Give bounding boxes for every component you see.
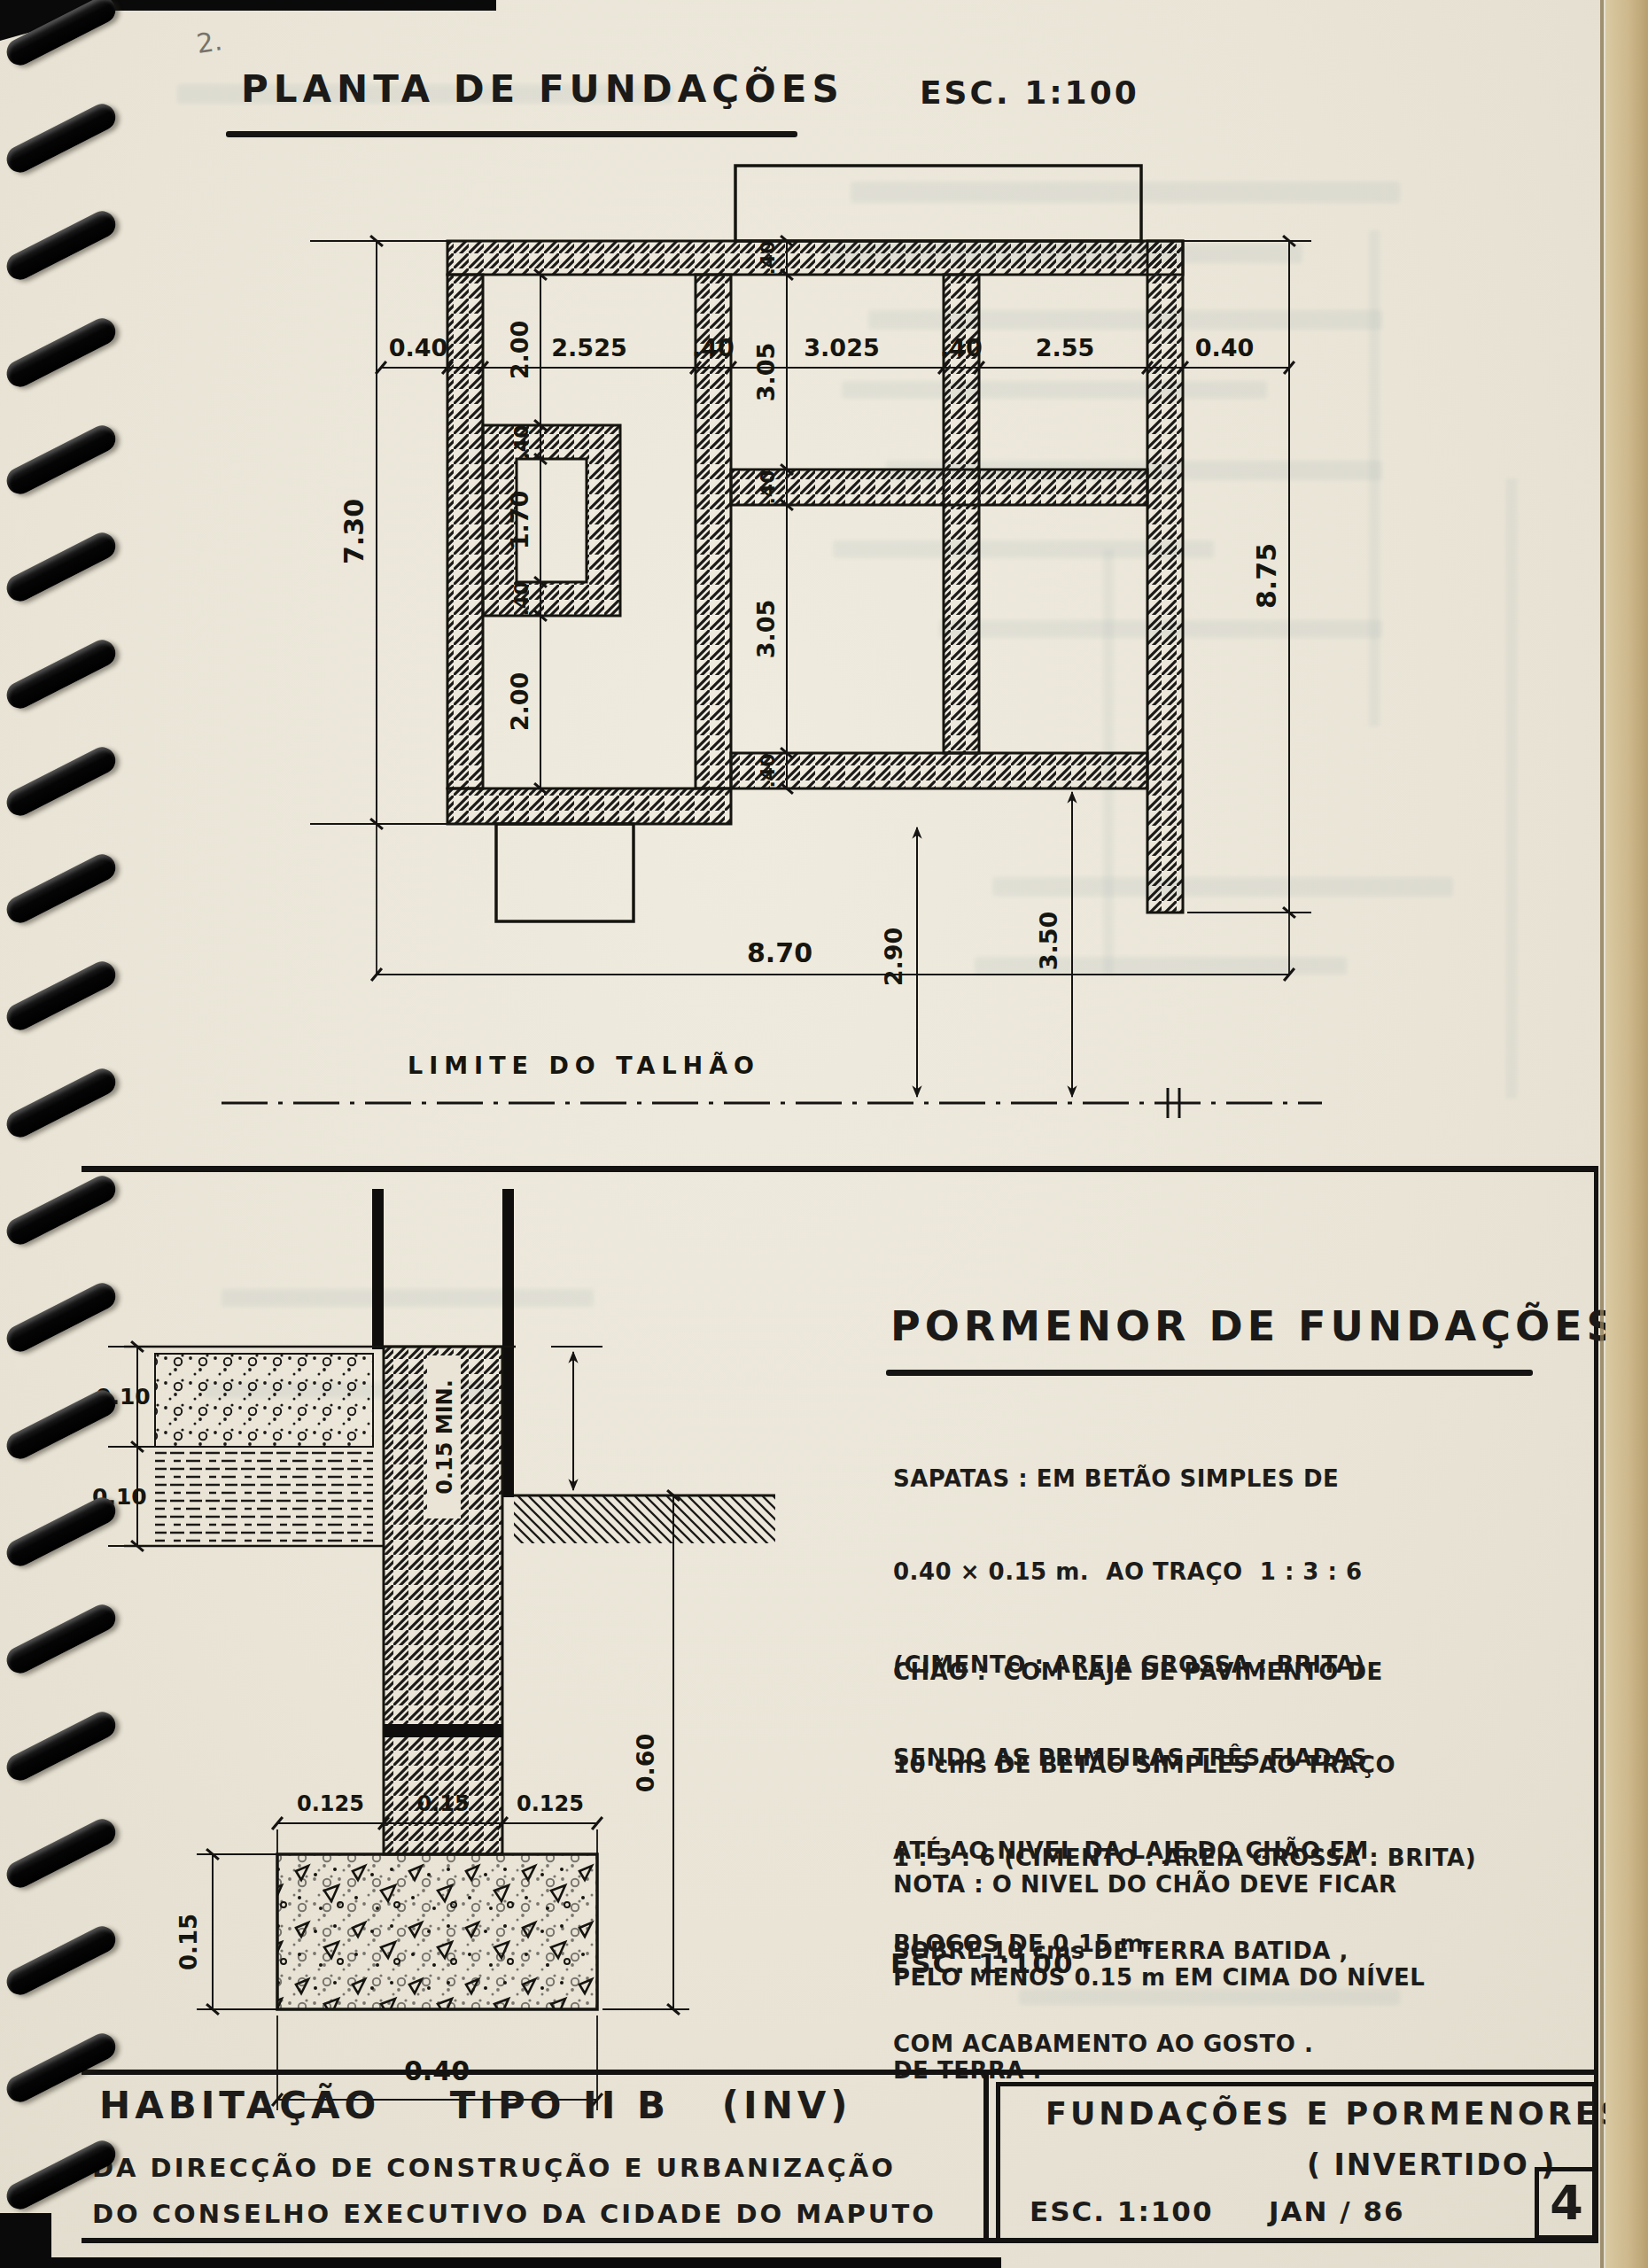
binding-coil xyxy=(2,528,120,606)
footing-stipple xyxy=(277,1854,597,2009)
binding-coil xyxy=(2,850,120,928)
foundation-plan-drawing: 0.40 2.525 .40 3.025 .40 2.55 0.40 2.00 … xyxy=(213,133,1347,1178)
dim-label-boundary-left: 2.90 xyxy=(880,928,907,987)
next-page-edge xyxy=(1605,0,1648,2268)
dim-label: 3.05 xyxy=(752,600,780,659)
scanned-drawing-page: 2. PLANTA DE FUNDAÇÕES ESC. 1:100 xyxy=(0,0,1648,2268)
concrete-slab xyxy=(155,1354,373,1447)
page-title: PLANTA DE FUNDAÇÕES xyxy=(241,67,844,111)
project-title: HABITAÇÃO TIPO II B (INV) xyxy=(99,2084,852,2127)
text-line: NOTA : O NIVEL DO CHÃO DEVE FICAR xyxy=(893,1869,1425,1900)
binding-coil xyxy=(2,99,120,177)
binding-coil xyxy=(2,742,120,820)
dim-label: 0.40 xyxy=(1195,334,1255,361)
sheet-title: FUNDAÇÕES E PORMENORES xyxy=(1046,2096,1626,2132)
org-line-1: DA DIRECÇÃO DE CONSTRUÇÃO E URBANIZAÇÃO xyxy=(92,2153,896,2183)
plot-boundary-label: LIMITE DO TALHÃO xyxy=(408,1052,760,1079)
text-line: SAPATAS : EM BETÃO SIMPLES DE xyxy=(893,1464,1369,1495)
plan-scale-label: ESC. 1:100 xyxy=(920,74,1139,111)
detail-title-underline xyxy=(886,1370,1533,1376)
bleed-through-artifact xyxy=(1369,230,1380,726)
text-line: CHÃO : COM LAJE DE PAVIMENTO DE xyxy=(893,1657,1476,1688)
dim-label: 2.00 xyxy=(506,672,533,732)
binding-coil xyxy=(2,957,120,1035)
dim-label: 2.00 xyxy=(506,321,533,380)
text-line: 0.40 × 0.15 m. AO TRAÇO 1 : 3 : 6 xyxy=(893,1557,1369,1588)
dim-label: .40 xyxy=(510,582,532,617)
titleblock-top-border xyxy=(82,2070,1598,2075)
dim-label: .40 xyxy=(510,425,532,460)
detail-title: PORMENOR DE FUNDAÇÕES xyxy=(890,1302,1621,1350)
dim-label: .40 xyxy=(757,241,779,276)
dim-label: .40 xyxy=(757,754,779,788)
dim-label: .40 xyxy=(757,470,779,505)
soil-hatch xyxy=(514,1495,775,1543)
sheet-date: JAN / 86 xyxy=(1269,2195,1405,2227)
dim-label: 0.15 xyxy=(416,1791,469,1816)
dim-label-left-total: 7.30 xyxy=(338,499,369,564)
dim-label-depth: 0.60 xyxy=(632,1734,659,1793)
text-line: 10 cms DE BETÃO SIMPLES AO TRAÇO xyxy=(893,1750,1476,1781)
damp-proof-course xyxy=(384,1724,502,1737)
dim-label: 2.525 xyxy=(551,334,626,361)
pencil-note: 2. xyxy=(195,25,224,59)
binding-coil xyxy=(2,314,120,392)
earth-fill xyxy=(155,1450,373,1546)
sheet-number-box: 4 xyxy=(1535,2167,1598,2240)
dim-label: 3.05 xyxy=(752,343,780,402)
dim-label-boundary-right: 3.50 xyxy=(1035,912,1062,971)
section-wall-label: 0.15 MIN. xyxy=(427,1355,461,1518)
dim-label: 0.125 xyxy=(517,1791,584,1816)
section-divider-line xyxy=(82,1166,1598,1172)
dim-label-right-total: 8.75 xyxy=(1251,543,1282,609)
dim-label-bottom-total: 8.70 xyxy=(747,937,812,968)
binding-coil xyxy=(2,635,120,713)
dim-label: 0.125 xyxy=(297,1791,364,1816)
titleblock-cell-divider xyxy=(983,2070,989,2243)
binding-coil xyxy=(2,421,120,499)
detail-scale-label: ESC. 1:100 xyxy=(890,1947,1075,1979)
sheet-subtitle: ( INVERTIDO ) xyxy=(1307,2148,1556,2182)
dim-label: .40 xyxy=(692,334,735,361)
sheet-scale: ESC. 1:100 xyxy=(1030,2195,1214,2227)
sheet-number: 4 xyxy=(1539,2171,1594,2235)
sheet-edge-line xyxy=(1600,0,1604,2268)
dim-label: .40 xyxy=(940,334,983,361)
dim-label-footing-h: 0.15 xyxy=(175,1914,202,1970)
binding-coil xyxy=(2,1064,120,1142)
bleed-through-artifact xyxy=(1506,478,1517,1099)
svg-text:0.15 MIN.: 0.15 MIN. xyxy=(432,1379,457,1495)
scan-edge xyxy=(35,2257,1001,2268)
binding-coil xyxy=(2,206,120,284)
foundation-detail-drawing: 0.15 MIN. 0.10 0.10 0.60 0.1 xyxy=(62,1178,806,2144)
dim-label: 2.55 xyxy=(1036,334,1095,361)
dim-label: 0.40 xyxy=(389,334,448,361)
org-line-2: DO CONSELHO EXECUTIVO DA CIDADE DO MAPUT… xyxy=(92,2199,937,2229)
dim-label: 3.025 xyxy=(804,334,879,361)
dim-label: 1.70 xyxy=(506,491,533,550)
